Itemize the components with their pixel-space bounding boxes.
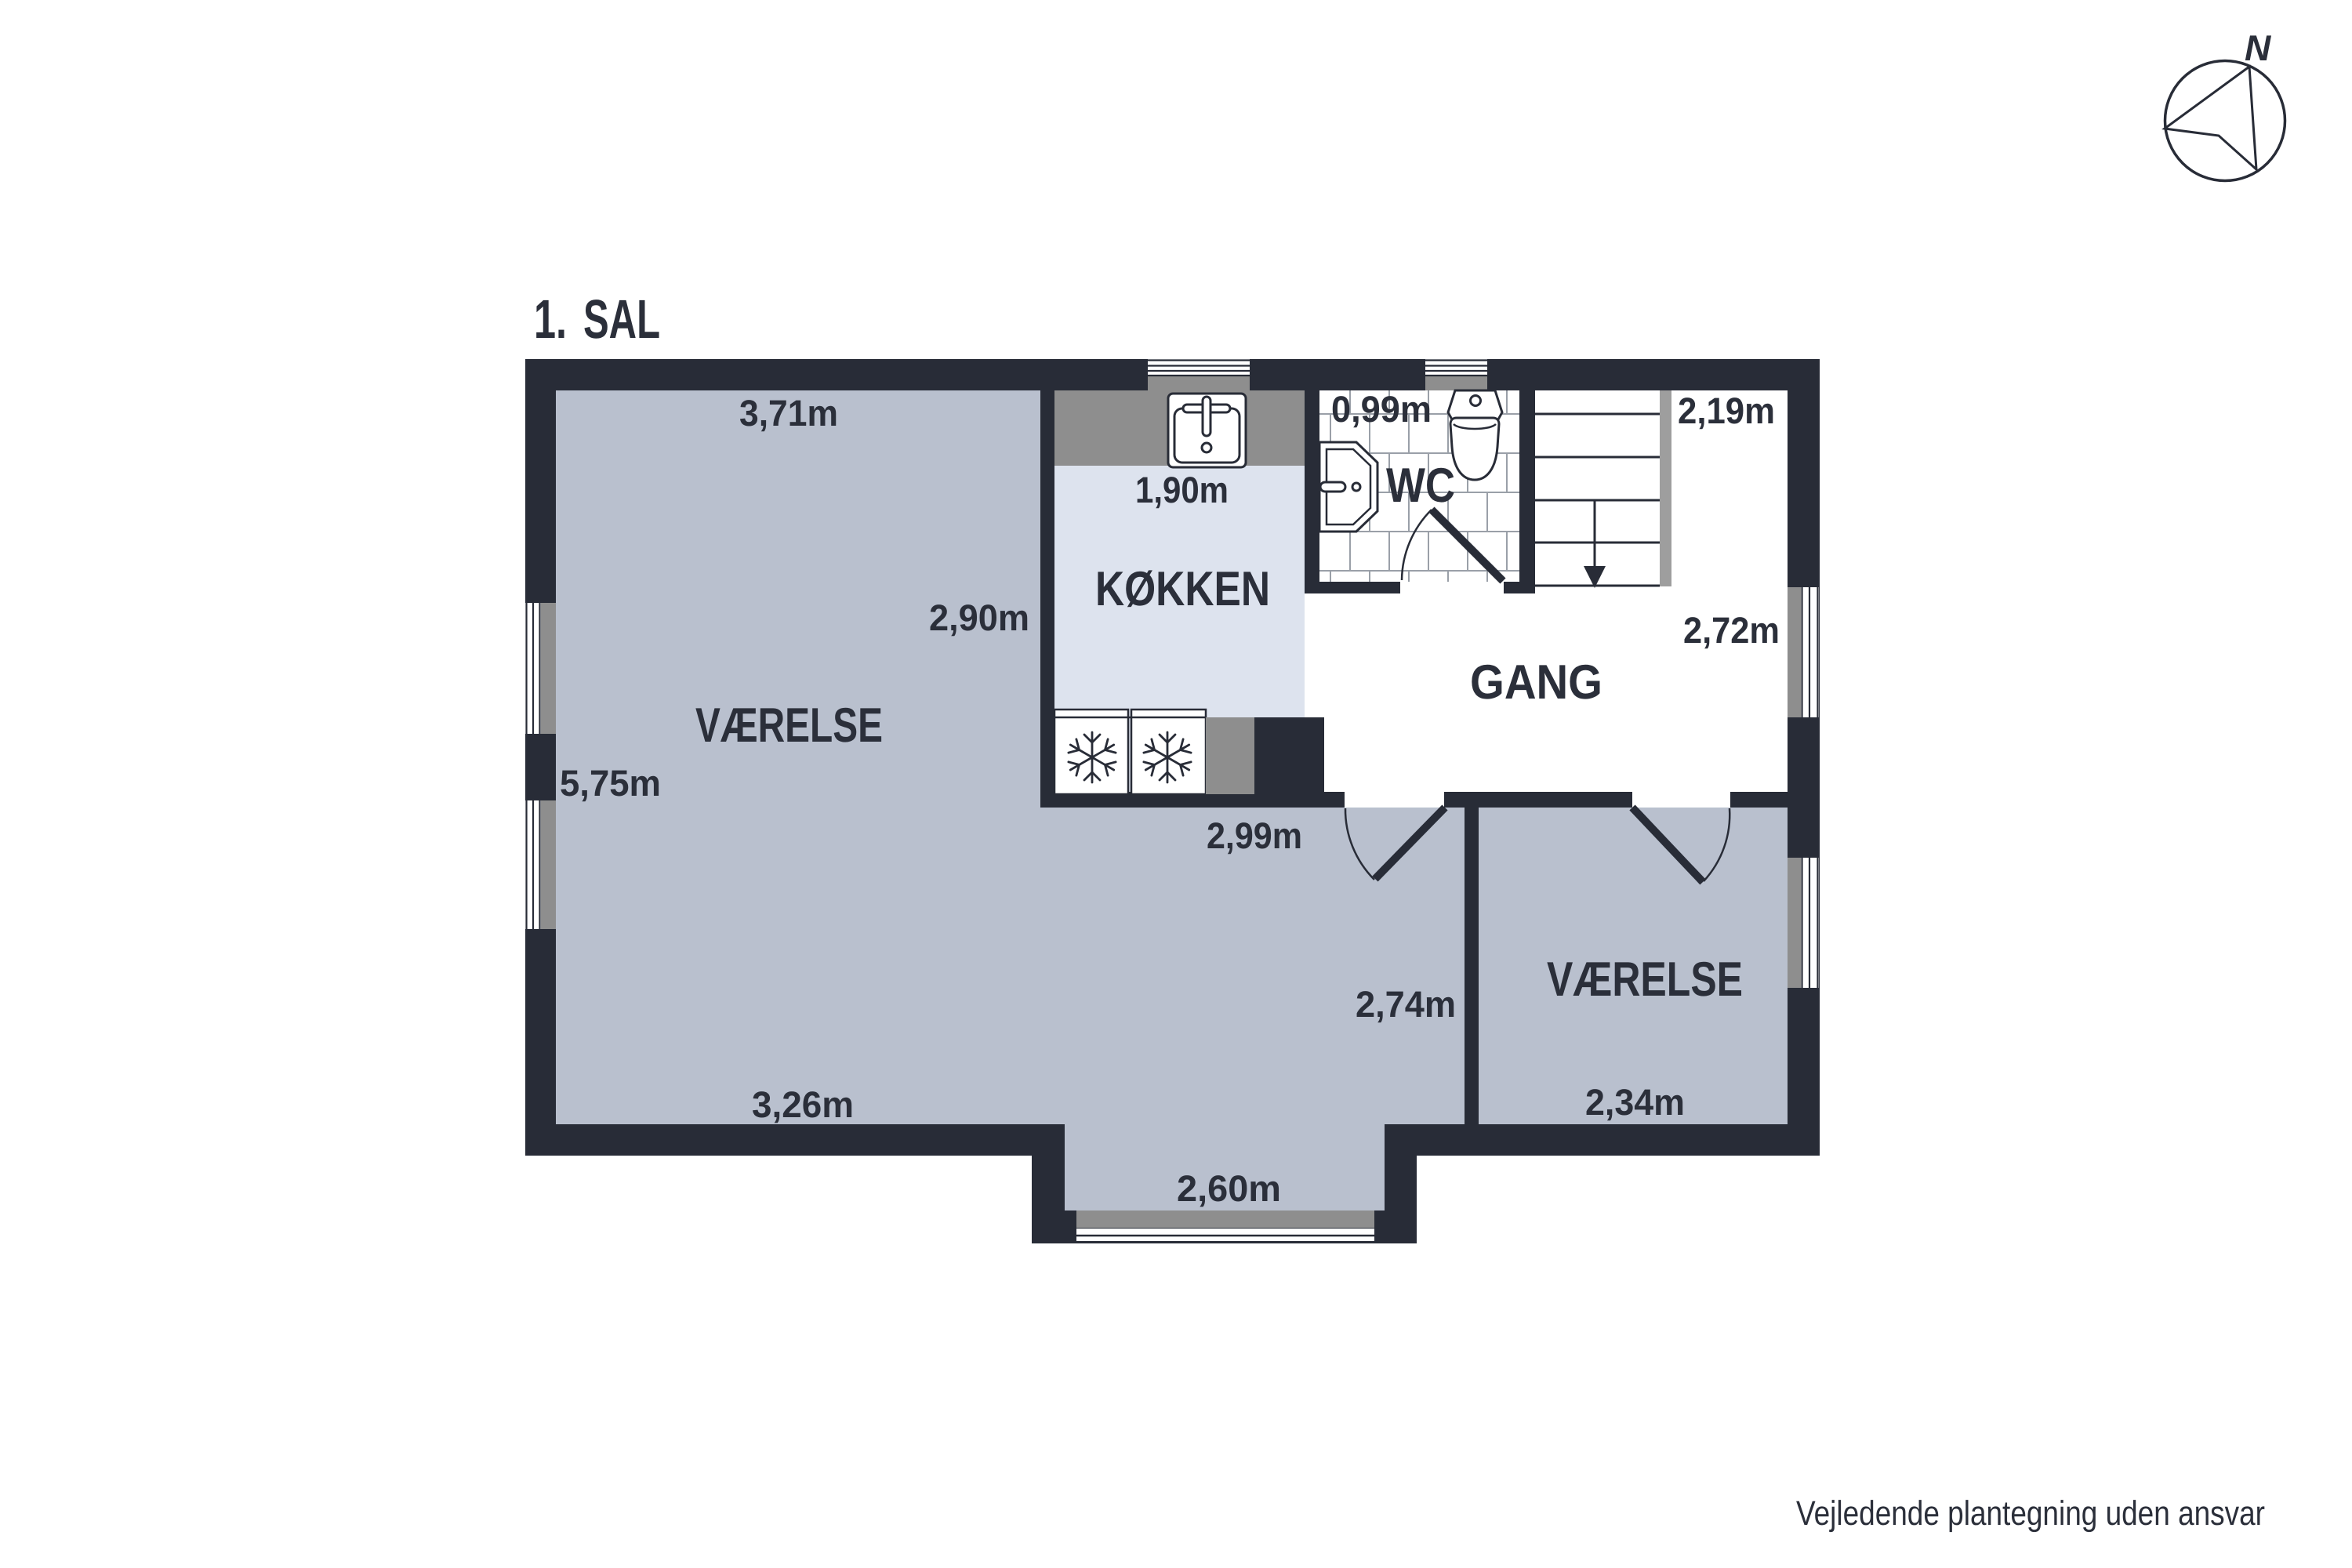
svg-text:5,75m: 5,75m xyxy=(560,762,661,804)
svg-text:1.: 1. xyxy=(534,289,567,350)
svg-text:Vejledende plantegning uden an: Vejledende plantegning uden ansvar xyxy=(1796,1494,2265,1533)
svg-text:VÆRELSE: VÆRELSE xyxy=(1547,953,1743,1007)
svg-text:SAL: SAL xyxy=(583,289,660,350)
svg-text:2,60m: 2,60m xyxy=(1177,1167,1281,1209)
svg-text:2,74m: 2,74m xyxy=(1356,983,1456,1025)
svg-text:2,19m: 2,19m xyxy=(1678,390,1775,431)
svg-text:KØKKEN: KØKKEN xyxy=(1095,562,1270,616)
svg-text:GANG: GANG xyxy=(1470,655,1602,710)
svg-text:2,99m: 2,99m xyxy=(1207,815,1302,856)
svg-text:2,34m: 2,34m xyxy=(1585,1081,1685,1123)
svg-text:3,71m: 3,71m xyxy=(739,392,838,434)
svg-text:1,90m: 1,90m xyxy=(1135,469,1229,510)
svg-text:2,72m: 2,72m xyxy=(1683,609,1780,651)
svg-text:VÆRELSE: VÆRELSE xyxy=(695,699,883,753)
svg-text:2,90m: 2,90m xyxy=(929,597,1029,638)
svg-text:0,99m: 0,99m xyxy=(1331,388,1432,430)
svg-text:N: N xyxy=(2245,27,2271,68)
svg-text:WC: WC xyxy=(1386,459,1455,513)
svg-text:3,26m: 3,26m xyxy=(752,1083,854,1125)
